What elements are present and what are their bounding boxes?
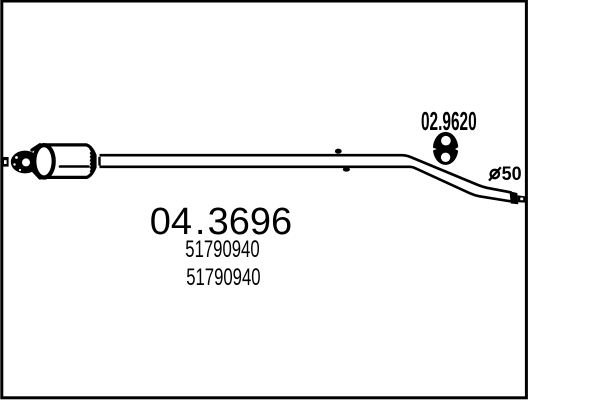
- svg-text:50: 50: [502, 163, 522, 185]
- svg-text:51790940: 51790940: [185, 236, 259, 263]
- svg-text:02.9620: 02.9620: [421, 107, 477, 136]
- svg-text:51790940: 51790940: [186, 264, 260, 291]
